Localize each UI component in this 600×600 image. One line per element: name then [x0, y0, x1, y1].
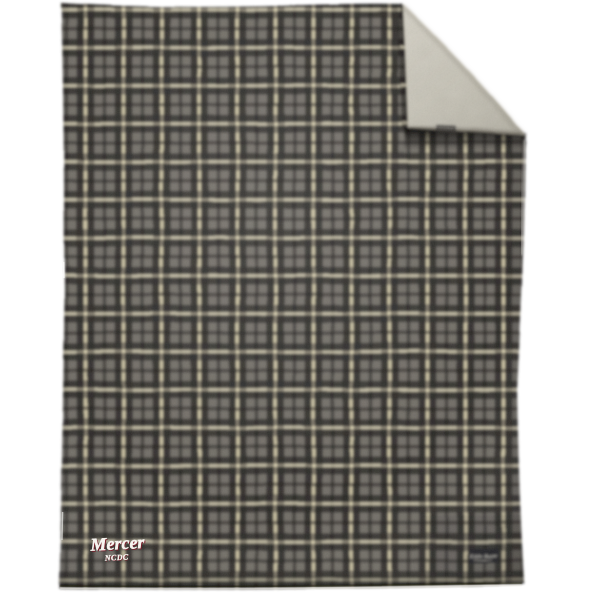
svg-text:Mercer: Mercer: [89, 532, 146, 555]
svg-text:NCDC: NCDC: [104, 552, 130, 562]
